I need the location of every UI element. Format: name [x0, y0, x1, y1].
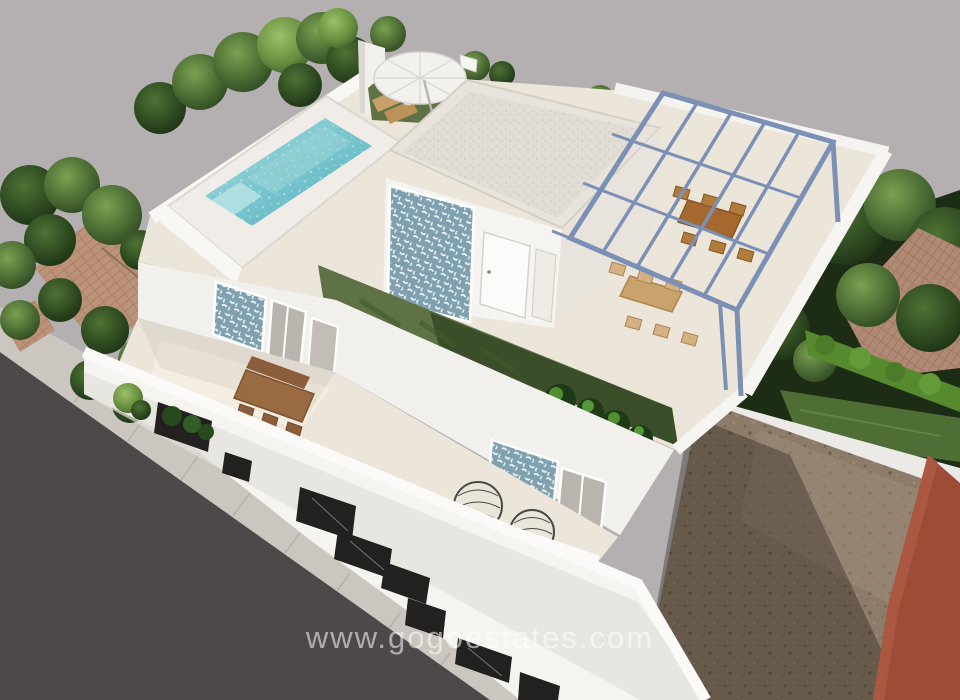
render-canvas: www.gogoestates.com — [0, 0, 960, 700]
villa-render: www.gogoestates.com — [0, 0, 960, 700]
door-handle — [487, 270, 491, 274]
penthouse-side-door — [532, 249, 556, 322]
street-bush — [131, 400, 151, 420]
penthouse-door — [480, 232, 530, 318]
watermark-text: www.gogoestates.com — [305, 620, 654, 655]
